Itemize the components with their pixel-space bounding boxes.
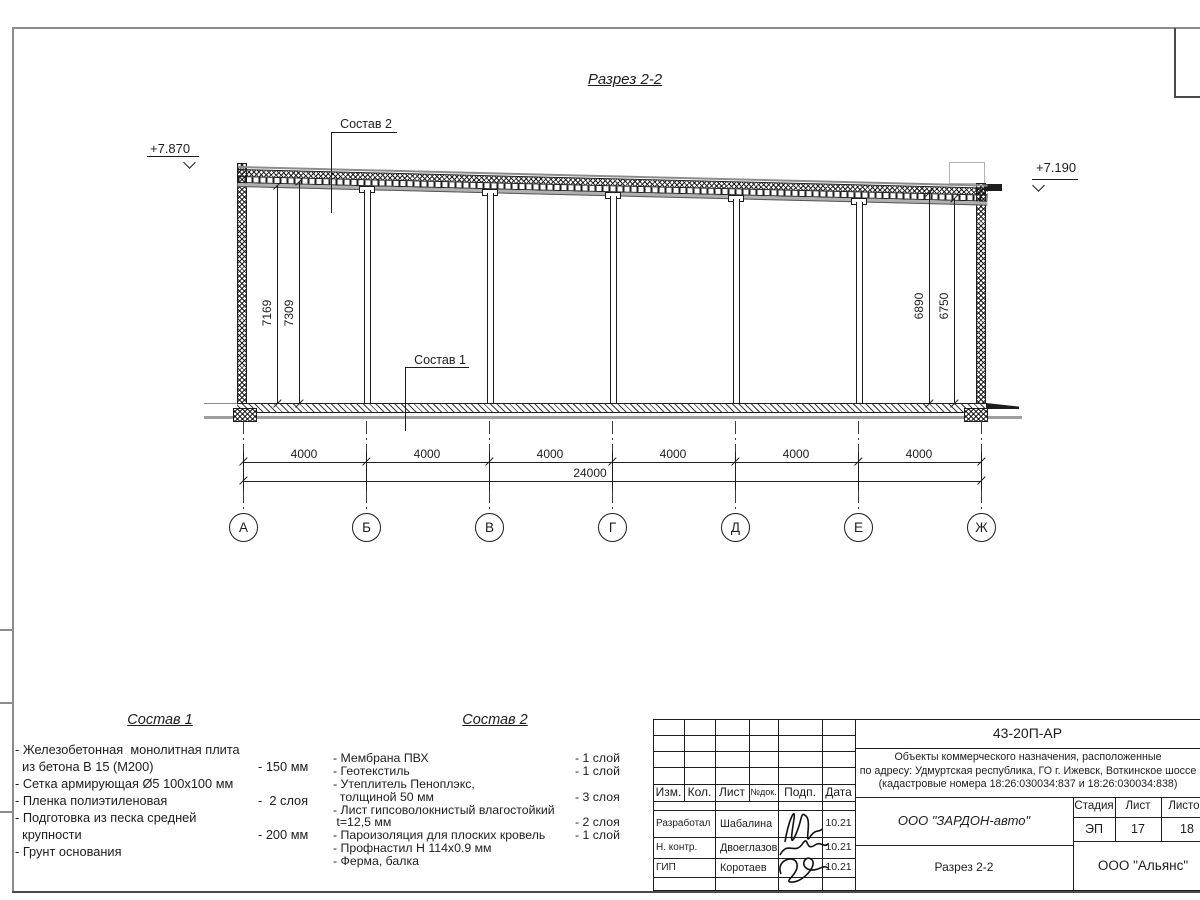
project-line: Объекты коммерческого назначения, распол… (858, 751, 1198, 765)
floor-composition-label: Состав 1 (405, 353, 475, 367)
dim-extension-line (243, 452, 244, 490)
item-text: t=12,5 мм (333, 815, 391, 829)
signature-korotaev (773, 852, 831, 886)
tb-role: Разработал (656, 810, 715, 837)
sostav2-title: Состав 2 (440, 712, 550, 728)
tb-col-podp: Подп. (778, 784, 822, 801)
dim-extension-line (366, 452, 367, 490)
vdim-7309-value: 7309 (282, 281, 296, 345)
axis-bubble-J: Ж (967, 513, 996, 542)
item-text: - Утеплитель Пеноплэкс, (333, 777, 475, 791)
tb-list-label: Лист (1115, 797, 1161, 817)
item-text: крупности (15, 827, 82, 842)
axis-bubble-D: Д (721, 513, 750, 542)
item-text: - Ферма, балка (333, 854, 419, 868)
bay-dim-value: 4000 (766, 447, 826, 461)
floor-slab (237, 403, 987, 413)
column-V (487, 193, 494, 405)
bay-dim-value: 4000 (643, 447, 703, 461)
ground-line (204, 416, 1022, 419)
bay-dim-value: 4000 (397, 447, 457, 461)
titleblock-line (653, 735, 855, 736)
tb-col-izm: Изм. (653, 784, 684, 801)
item-value: - 150 мм (258, 759, 308, 774)
elevation-left-value: +7.870 (150, 141, 202, 156)
vdim-7169-value: 7169 (260, 281, 274, 345)
axis-letter: Б (362, 520, 371, 535)
tb-date: 10.21 (822, 810, 855, 837)
tb-name: Шабалина (720, 810, 778, 837)
project-line: (кадастровые номера 18:26:030034:837 и 1… (858, 778, 1198, 792)
item-text: из бетона В 15 (М200) (15, 759, 154, 774)
section-title: Разрез 2-2 (535, 71, 715, 88)
foundation-block-right (964, 408, 988, 422)
roof-composition-label: Состав 2 (331, 117, 401, 131)
item-text: толщиной 50 мм (333, 790, 434, 804)
vdim-line-6890 (929, 193, 930, 404)
drawing-sheet: Разрез 2-2 +7.870 +7.190 Состав 2 Состав… (0, 0, 1200, 900)
dim-extension-line (981, 452, 982, 490)
list-item: - Пленка полиэтиленовая- 2 слоя (15, 793, 325, 810)
vdim-6750-value: 6750 (937, 274, 951, 338)
sostav2-list: - Мембрана ПВХ- 1 слой - Геотекстиль- 1 … (333, 752, 643, 868)
item-value: - 200 мм (258, 827, 308, 842)
column-B (364, 190, 371, 405)
column-D (733, 199, 740, 405)
tb-col-data: Дата (822, 784, 855, 801)
bay-dim-value: 4000 (274, 447, 334, 461)
titleblock-line (855, 748, 1200, 749)
titleblock-line (653, 719, 654, 890)
frame-binding-tick (0, 811, 13, 813)
item-text: - Пароизоляция для плоских кровель (333, 828, 545, 842)
floor-composition-underline (405, 367, 469, 368)
dim-extension-line (858, 452, 859, 490)
axis-bubble-A: А (229, 513, 258, 542)
tb-contractor: ООО "Альянс" (1073, 841, 1200, 890)
ground-surface-left (204, 403, 238, 404)
tb-company: ООО "ЗАРДОН-авто" (855, 797, 1073, 845)
titleblock-line (653, 751, 855, 752)
list-item: - Ферма, балка (333, 855, 643, 868)
bay-dim-value: 4000 (889, 447, 949, 461)
tb-name: Коротаев (720, 858, 778, 877)
tb-project-description: Объекты коммерческого назначения, распол… (858, 751, 1198, 792)
project-line: по адресу: Удмуртская республика, ГО г. … (858, 765, 1198, 779)
tb-col-kol: Кол. (684, 784, 715, 801)
tb-listov-value: 18 (1161, 817, 1200, 841)
list-item: крупности- 200 мм (15, 827, 325, 844)
vdim-6890-value: 6890 (912, 274, 926, 338)
frame-corner-notch-horizontal (1174, 96, 1200, 98)
item-text: - Пленка полиэтиленовая (15, 793, 167, 808)
floor-composition-leader (405, 368, 406, 431)
vdim-line-7309 (299, 182, 300, 404)
tb-listov-label: Листов (1161, 797, 1200, 817)
roof-composition-leader (331, 133, 332, 213)
sostav1-list: - Железобетонная монолитная плита из бет… (15, 742, 325, 861)
item-value: - 1 слой (575, 829, 620, 842)
item-value: - 1 слой (575, 752, 620, 765)
right-wall (976, 183, 986, 412)
tb-sheet-name: Разрез 2-2 (855, 845, 1073, 890)
rooftop-unit-outline (949, 162, 985, 184)
item-text: - Лист гипсоволокнистый влагостойкий (333, 803, 555, 817)
tb-doc-number: 43-20П-АР (855, 719, 1200, 748)
tb-role: Н. контр. (656, 837, 715, 858)
titleblock-line (653, 767, 855, 768)
elevation-left-arrow-icon (183, 156, 196, 169)
tb-col-list: Лист (715, 784, 749, 801)
axis-bubble-V: В (475, 513, 504, 542)
axis-bubble-B: Б (352, 513, 381, 542)
dim-extension-line (489, 452, 490, 490)
sostav1-title: Состав 1 (105, 712, 215, 728)
bay-dim-value: 4000 (520, 447, 580, 461)
axis-letter: А (239, 520, 248, 535)
list-item: - Подготовка из песка средней (15, 810, 325, 827)
right-floor-flashing (986, 403, 1019, 409)
list-item: из бетона В 15 (М200)- 150 мм (15, 759, 325, 776)
titleblock-line (653, 890, 1200, 891)
item-text: - Профнастил Н 114х0.9 мм (333, 841, 491, 855)
item-text: - Грунт основания (15, 844, 122, 859)
item-text: - Подготовка из песка средней (15, 810, 196, 825)
list-item: - Грунт основания (15, 844, 325, 861)
titleblock-line (715, 719, 716, 890)
item-text: - Мембрана ПВХ (333, 751, 429, 765)
frame-binding-tick (0, 702, 13, 704)
item-text: - Геотекстиль (333, 764, 410, 778)
total-dim-value: 24000 (550, 466, 630, 480)
frame-corner-notch-vertical (1174, 28, 1176, 97)
left-wall (237, 163, 247, 410)
roof-composition-underline (331, 132, 397, 133)
tb-col-ndok: №док. (749, 784, 778, 801)
axis-letter: Е (854, 520, 863, 535)
column-G (610, 196, 617, 405)
item-value: - 2 слоя (258, 793, 308, 808)
frame-top-line (13, 27, 1200, 29)
elevation-right-arrow-icon (1032, 179, 1045, 192)
frame-binding-tick (0, 629, 13, 631)
tb-stage-label: Стадия (1073, 797, 1115, 817)
dim-extension-line (735, 452, 736, 490)
item-value: - 3 слоя (575, 791, 620, 804)
axis-letter: Г (609, 520, 616, 535)
elevation-right-value: +7.190 (1036, 160, 1088, 175)
frame-left-line (12, 27, 14, 892)
foundation-block-left (233, 408, 257, 422)
axis-bubble-E: Е (844, 513, 873, 542)
axis-letter: В (485, 520, 494, 535)
item-text: - Сетка армирующая Ø5 100х100 мм (15, 776, 233, 791)
axis-letter: Д (731, 520, 740, 535)
axis-letter: Ж (975, 520, 987, 535)
tb-role: ГИП (656, 858, 715, 877)
item-value: - 1 слой (575, 765, 620, 778)
tb-stage-value: ЭП (1073, 817, 1115, 841)
tb-name: Двоеглазов (720, 837, 778, 858)
item-text: - Железобетонная монолитная плита (15, 742, 240, 757)
list-item: - Железобетонная монолитная плита (15, 742, 325, 759)
vdim-line-7169 (277, 186, 278, 404)
tb-list-value: 17 (1115, 817, 1161, 841)
total-dim-line (243, 481, 981, 482)
list-item: - Сетка армирующая Ø5 100х100 мм (15, 776, 325, 793)
axis-bubble-G: Г (598, 513, 627, 542)
vdim-line-6750 (954, 199, 955, 404)
column-E (856, 202, 863, 405)
